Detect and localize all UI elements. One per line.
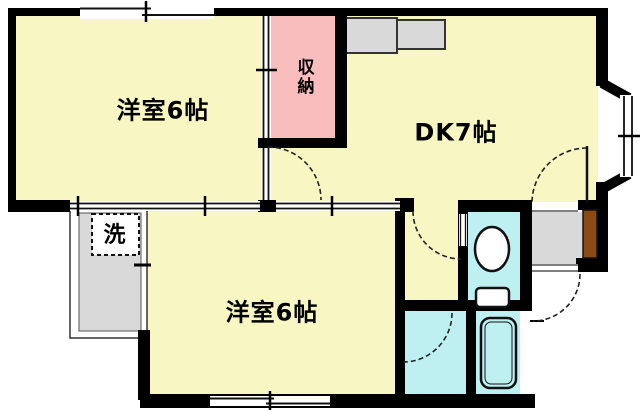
wall-entrance-sill [576,258,608,272]
front-door [583,210,597,258]
floor-plan-drawing [0,0,640,410]
western-room-1-label: 洋室6帖 [117,91,210,126]
dining-kitchen-label: DK7帖 [414,113,497,148]
kitchen-sink [397,20,445,49]
floor-plan: 洋室6帖 DK7帖 洋室6帖 収納 洗 [0,0,640,410]
bay-window [618,95,640,177]
wall-room1-bottom-left [8,200,70,212]
hall-floor-under-closet [271,147,347,202]
toilet-door [459,214,467,246]
wall-washroom-top [397,300,532,311]
window-room1-top [80,1,214,22]
wall-bath-divider [466,311,476,398]
closet-label: 収納 [292,58,317,96]
genkan-floor [532,212,582,264]
wall-center-junction [258,200,276,212]
washroom-floor [405,311,466,396]
wall-right-entrance [596,182,608,266]
wall-closet-right [335,8,347,147]
wall-outer-right-wet [520,202,532,311]
kitchen-counter [338,18,445,53]
door-arc-entrance [533,274,580,321]
wall-room2-right [395,202,405,398]
wall-left [8,8,16,212]
western-room-2-label: 洋室6帖 [226,293,319,328]
laundry-label: 洗 [103,217,126,249]
wall-right-upper [596,8,608,86]
wall-entrance-lintel [578,200,608,210]
wall-room2-left [138,330,150,400]
